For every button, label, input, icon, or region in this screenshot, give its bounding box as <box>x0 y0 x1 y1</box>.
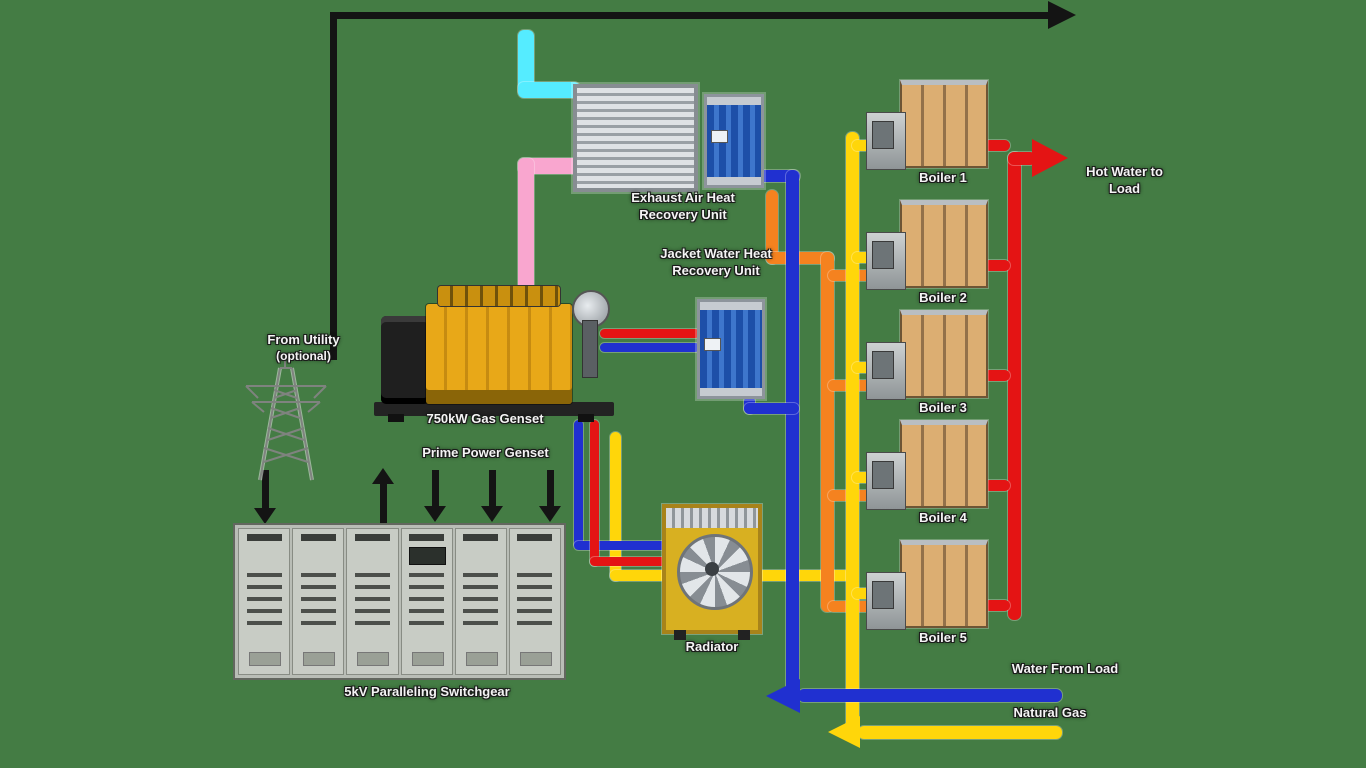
power-export-arrowhead <box>1048 1 1076 29</box>
burner-housing <box>872 121 894 149</box>
boiler-1-label: Boiler 1 <box>897 169 989 186</box>
boiler-2-label: Boiler 2 <box>897 289 989 306</box>
exhaust-heat-recovery-unit <box>573 84 698 192</box>
water-return-label: Water From Load <box>1000 660 1130 677</box>
gas-trunk-pipe <box>846 132 859 739</box>
power-export-line-vertical <box>330 12 337 360</box>
panel-nameplate <box>517 534 552 541</box>
switchgear-panel-3 <box>346 528 398 675</box>
utility-label-line2: (optional) <box>246 348 361 365</box>
utility-feed-arrowhead <box>254 508 276 524</box>
panel-controls <box>355 573 390 625</box>
natural-gas-label: Natural Gas <box>990 704 1110 721</box>
boiler-4-burner <box>866 452 906 510</box>
switchgear-panel-5 <box>455 528 507 675</box>
boiler-3-label: Boiler 3 <box>897 399 989 416</box>
boiler-3-burner <box>866 342 906 400</box>
boiler-5-burner <box>866 572 906 630</box>
radiator-unit <box>662 504 762 634</box>
panel-display <box>409 547 446 565</box>
hot-water-trunk-pipe <box>1008 152 1021 620</box>
radiator-fan-hub <box>705 562 719 576</box>
switchgear-panel-4 <box>401 528 453 675</box>
boiler-2 <box>900 200 988 288</box>
panel-nameplate <box>463 534 498 541</box>
jacket-hx-label-line2: Recovery Unit <box>636 262 796 279</box>
radiator-return-pipe-horizontal <box>574 541 666 550</box>
burner-housing <box>872 461 894 489</box>
boiler-4-label: Boiler 4 <box>897 509 989 526</box>
panel-vent <box>466 652 498 666</box>
burner-housing <box>872 241 894 269</box>
gas-supply-pipe-bottom <box>858 726 1062 739</box>
panel-vent <box>357 652 389 666</box>
paralleling-switchgear <box>233 523 566 680</box>
exhaust-hx-label-line1: Exhaust Air Heat <box>603 189 763 206</box>
exhaust-inlet-pipe-horizontal <box>518 82 580 98</box>
hot-water-label-line1: Hot Water to <box>1072 163 1177 180</box>
switchgear-output-arrowhead <box>372 468 394 484</box>
panel-controls <box>517 573 552 625</box>
radiator-supply-pipe-vertical <box>590 420 599 566</box>
jacket-water-plate-heat-exchanger <box>697 299 765 399</box>
switchgear-label: 5kV Paralleling Switchgear <box>302 683 552 700</box>
radiator-label: Radiator <box>670 638 754 655</box>
genset-engine-block <box>426 304 572 404</box>
gas-supply-arrowhead <box>828 716 860 748</box>
jacket-hx-label-line1: Jacket Water Heat <box>636 245 796 262</box>
panel-vent <box>249 652 281 666</box>
transmission-tower <box>238 352 333 482</box>
genset-valve-covers <box>438 286 560 306</box>
switchgear-output-line <box>380 484 387 524</box>
boiler-1-burner <box>866 112 906 170</box>
hx-nameplate <box>704 338 721 351</box>
genset-foot-right <box>578 414 594 422</box>
switchgear-panel-1 <box>238 528 290 675</box>
genset-power-line-1 <box>432 470 439 508</box>
panel-vent <box>412 652 444 666</box>
genset-power-arrowhead-3 <box>539 506 561 522</box>
boiler-2-burner <box>866 232 906 290</box>
chp-system-diagram: From Utility (optional) 750kW Gas Genset… <box>0 0 1366 768</box>
radiator-supply-pipe-horizontal <box>590 557 666 566</box>
preheat-trunk-pipe <box>821 252 834 612</box>
boiler-3 <box>900 310 988 398</box>
hot-water-label-line2: Load <box>1072 180 1177 197</box>
hx-top-cap <box>700 302 762 310</box>
genset-power-line-2 <box>489 470 496 508</box>
radiator-louvres <box>666 508 758 528</box>
panel-controls <box>463 573 498 625</box>
gas-genset <box>368 276 620 422</box>
hx-bottom-cap <box>707 177 761 185</box>
panel-nameplate <box>301 534 336 541</box>
boiler-5 <box>900 540 988 628</box>
panel-controls <box>409 573 444 625</box>
genset-subtitle-label: Prime Power Genset <box>398 444 573 461</box>
genset-power-arrowhead-2 <box>481 506 503 522</box>
hx-nameplate <box>711 130 728 143</box>
switchgear-panel-2 <box>292 528 344 675</box>
panel-controls <box>301 573 336 625</box>
panel-nameplate <box>409 534 444 541</box>
genset-exhaust-duct <box>582 320 598 378</box>
boiler-4 <box>900 420 988 508</box>
return-link-jacket-hx-horizontal <box>744 403 799 414</box>
hx-bottom-cap <box>700 388 762 396</box>
panel-vent <box>303 652 335 666</box>
genset-title-label: 750kW Gas Genset <box>400 410 570 427</box>
panel-nameplate <box>247 534 282 541</box>
panel-nameplate <box>355 534 390 541</box>
radiator-return-pipe-vertical <box>574 420 583 548</box>
power-export-line-horizontal <box>330 12 1052 19</box>
exhaust-plate-heat-exchanger <box>704 94 764 188</box>
hot-water-arrowhead <box>1032 139 1068 177</box>
switchgear-panel-6 <box>509 528 561 675</box>
water-return-arrowhead <box>766 679 800 713</box>
burner-housing <box>872 581 894 609</box>
boiler-1 <box>900 80 988 168</box>
utility-label-line1: From Utility <box>246 331 361 348</box>
burner-housing <box>872 351 894 379</box>
panel-vent <box>520 652 552 666</box>
exhaust-hx-label-line2: Recovery Unit <box>603 206 763 223</box>
genset-alternator <box>381 316 429 404</box>
water-return-pipe-bottom <box>798 689 1062 702</box>
genset-power-line-3 <box>547 470 554 508</box>
panel-controls <box>247 573 282 625</box>
genset-power-arrowhead-1 <box>424 506 446 522</box>
hx-top-cap <box>707 97 761 105</box>
boiler-5-label: Boiler 5 <box>897 629 989 646</box>
